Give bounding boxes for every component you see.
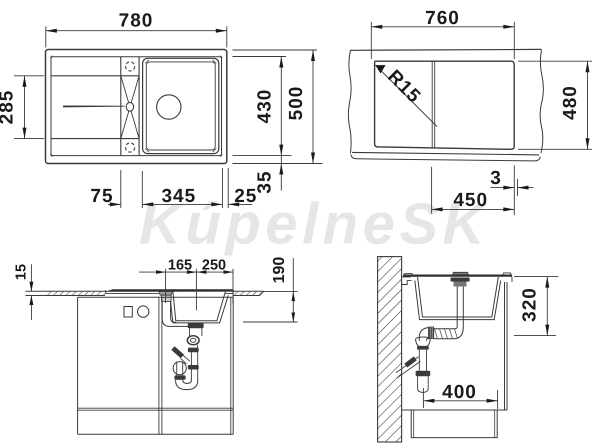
svg-text:250: 250 [202, 257, 226, 273]
svg-text:35: 35 [254, 170, 275, 193]
svg-text:760: 760 [425, 8, 460, 29]
svg-text:430: 430 [254, 89, 275, 124]
svg-text:320: 320 [520, 287, 541, 322]
svg-text:285: 285 [0, 90, 18, 125]
svg-text:480: 480 [560, 85, 581, 120]
svg-text:25: 25 [234, 186, 257, 207]
svg-text:400: 400 [442, 382, 477, 403]
svg-text:780: 780 [119, 11, 154, 32]
svg-text:500: 500 [286, 86, 307, 121]
svg-text:345: 345 [161, 186, 196, 207]
svg-text:3: 3 [490, 168, 502, 189]
svg-text:190: 190 [271, 257, 288, 284]
svg-text:75: 75 [90, 186, 113, 207]
svg-text:165: 165 [168, 257, 192, 273]
svg-text:450: 450 [453, 190, 488, 211]
svg-text:15: 15 [14, 264, 30, 280]
